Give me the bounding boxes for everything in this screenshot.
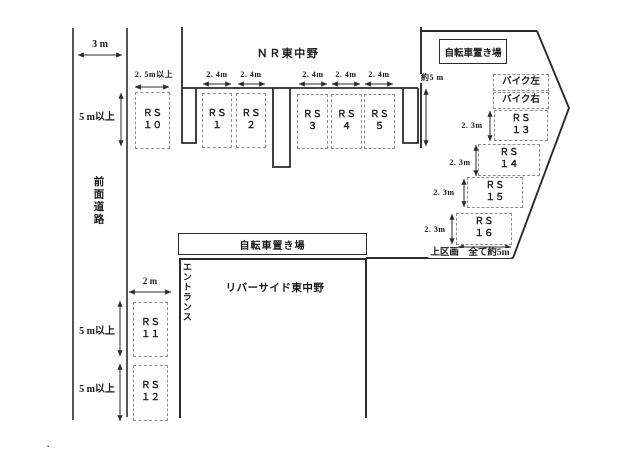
front-road-label: 前面道路 xyxy=(92,176,104,226)
clearance-rs11-label: 5 m以上 xyxy=(79,326,115,337)
rs13-depth-label: 2. 3m xyxy=(461,122,482,131)
parking-spot-rs5: ＲＳ ５ xyxy=(364,94,395,149)
riverside-building xyxy=(179,258,367,418)
stray-dot: . xyxy=(47,440,49,450)
parking-spot-rs11: ＲＳ １１ xyxy=(133,302,168,357)
rs2-width-label: 2. 4m xyxy=(240,71,261,80)
rs14-depth-label: 2. 3m xyxy=(449,159,470,168)
parking-spot-rs13: ＲＳ １３ xyxy=(494,110,548,141)
rs5-width-label: 2. 4m xyxy=(368,71,389,80)
bike-spot-right: バイク右 xyxy=(493,92,549,109)
bike-spot-left: バイク左 xyxy=(493,74,549,91)
rs10-width-label: 2. 5m以上 xyxy=(135,71,173,80)
upper-section-note: 上区画 全て約5m xyxy=(428,248,511,258)
nr-building-label: ＮＲ東中野 xyxy=(257,48,320,60)
road-width-label: 3 m xyxy=(92,39,108,50)
rs15-depth-label: 2. 3m xyxy=(433,189,454,198)
bicycle-parking-mid: 自転車置き場 xyxy=(178,233,367,255)
parking-spot-rs4: ＲＳ ４ xyxy=(331,94,362,149)
parking-layout-diagram: 自転車置き場 自転車置き場 ＲＳ １０ ＲＳ １ ＲＳ ２ ＲＳ ３ ＲＳ ４ … xyxy=(0,0,640,453)
rs1-width-label: 2. 4m xyxy=(206,71,227,80)
entrance-label: エントランス xyxy=(181,262,191,322)
parking-spot-rs12: ＲＳ １２ xyxy=(133,365,168,421)
parking-spot-rs2: ＲＳ ２ xyxy=(236,93,266,148)
clearance-rs12-label: 5 m以上 xyxy=(79,384,115,395)
parking-spot-rs10: ＲＳ １０ xyxy=(135,92,170,149)
parking-spot-rs14: ＲＳ １４ xyxy=(478,144,540,176)
parking-spot-rs16: ＲＳ １６ xyxy=(456,213,512,245)
parking-spot-rs1: ＲＳ １ xyxy=(202,93,232,148)
rs11-width-label: 2 m xyxy=(143,277,157,287)
bicycle-parking-top: 自転車置き場 xyxy=(439,39,507,64)
parking-spot-rs3: ＲＳ ３ xyxy=(297,94,328,149)
approach-depth-label: 約5 m xyxy=(419,74,446,83)
rs16-depth-label: 2. 3m xyxy=(424,226,445,235)
rs4-width-label: 2. 4m xyxy=(335,71,356,80)
riverside-building-label: リバーサイド東中野 xyxy=(226,283,325,295)
clearance-top-label: 5 m以上 xyxy=(79,112,115,123)
parking-spot-rs15: ＲＳ １５ xyxy=(467,177,523,208)
rs3-width-label: 2. 4m xyxy=(302,71,323,80)
